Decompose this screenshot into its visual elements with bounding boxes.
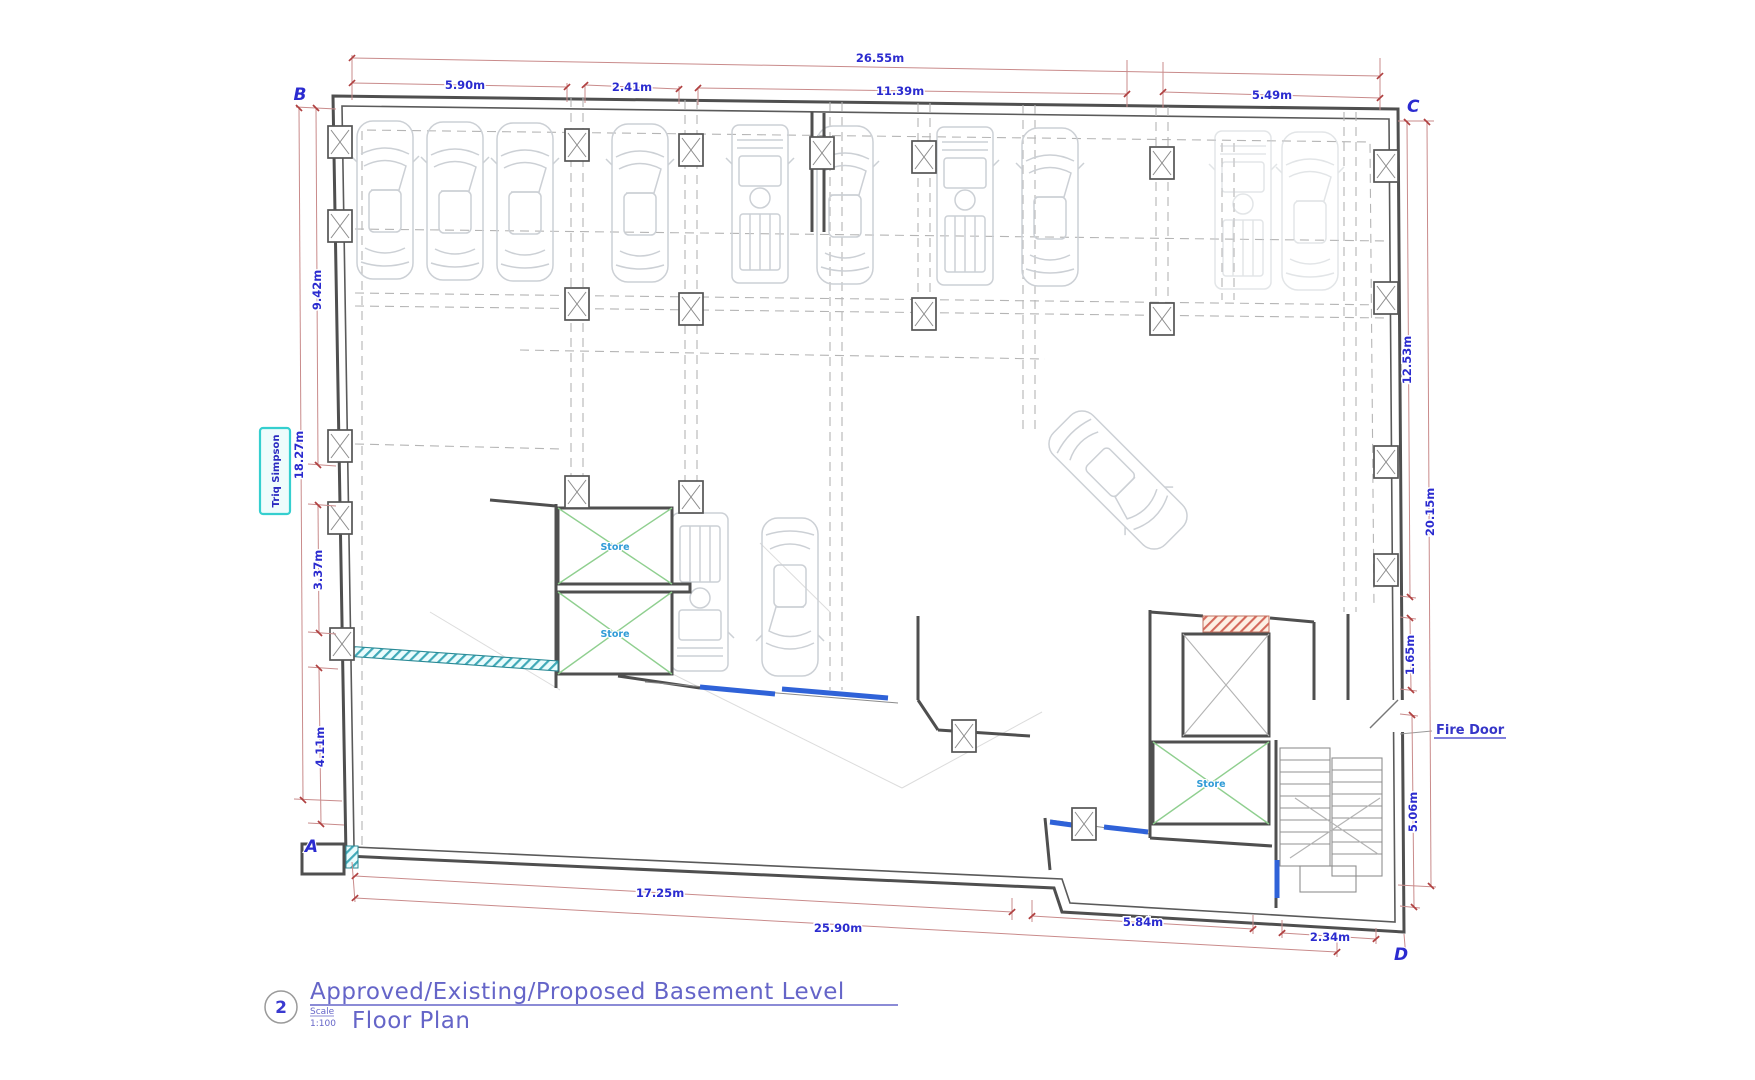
title-block: 2 Approved/Existing/Proposed Basement Le…: [265, 979, 898, 1034]
dim-top-d: 5.49m: [1252, 88, 1292, 102]
store-label-2: Store: [600, 629, 629, 640]
dim-top-overall: 26.55m: [856, 51, 904, 65]
dim-left-overall: 18.27m: [292, 431, 306, 479]
fire-door-label: Fire Door: [1436, 723, 1505, 738]
dim-right-b: 1.65m: [1403, 635, 1417, 675]
drawing-title-line1: Approved/Existing/Proposed Basement Leve…: [310, 979, 845, 1005]
corner-a: A: [303, 837, 318, 857]
dim-bottom-overall: 25.90m: [814, 921, 862, 935]
corner-d: D: [1394, 945, 1408, 965]
dim-left-a: 9.42m: [310, 270, 324, 310]
hatched-wall-red: [1203, 616, 1269, 632]
store-label-1: Store: [600, 542, 629, 553]
dim-bottom-b: 5.84m: [1123, 915, 1163, 929]
dim-bottom-c: 2.34m: [1310, 930, 1350, 944]
scale-label: Scale: [310, 1007, 335, 1017]
street-label: Triq Simpson: [271, 435, 282, 508]
dim-right-overall: 20.15m: [1423, 488, 1437, 536]
dim-top-a: 5.90m: [445, 78, 485, 92]
dim-left-b: 3.37m: [311, 550, 325, 590]
proposed-wall-blue: [1050, 822, 1072, 825]
floor-plan: Fire Door: [0, 0, 1755, 1080]
dim-bottom-a: 17.25m: [636, 886, 684, 900]
dim-right-a: 12.53m: [1400, 336, 1414, 384]
drawing-number: 2: [275, 998, 287, 1018]
scale-value: 1:100: [310, 1019, 336, 1029]
drawing-title-line2: Floor Plan: [352, 1008, 470, 1034]
corner-c: C: [1407, 97, 1420, 117]
street-name: Triq Simpson: [260, 428, 290, 514]
store-label-3: Store: [1196, 779, 1225, 790]
corner-b: B: [294, 85, 307, 105]
dim-top-c: 11.39m: [876, 84, 924, 98]
floor-plan-svg: Fire Door: [0, 0, 1755, 1080]
dim-top-b: 2.41m: [612, 80, 652, 94]
dim-left-c: 4.11m: [313, 727, 327, 767]
dim-right-c: 5.06m: [1406, 792, 1420, 832]
